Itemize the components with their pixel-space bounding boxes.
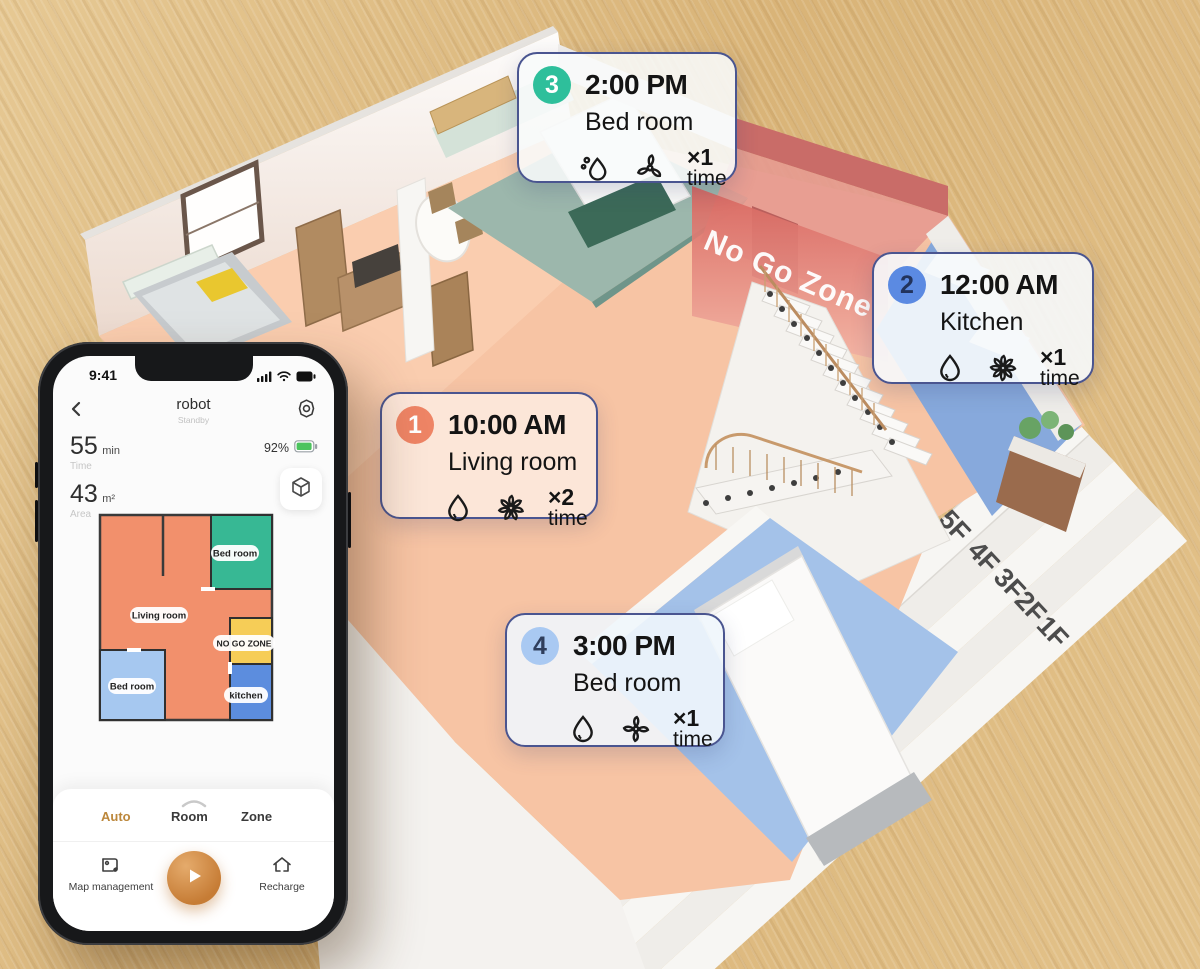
signal-icon (257, 369, 272, 387)
schedule-time: 3:00 PM (573, 630, 675, 662)
schedule-number-badge: 4 (521, 627, 559, 665)
device-title: robot (53, 396, 334, 413)
schedule-room: Kitchen (940, 308, 1078, 337)
device-status: Standby (53, 415, 334, 425)
water-drops-icon (579, 152, 613, 184)
battery-icon (296, 369, 316, 387)
map-management-button[interactable]: Map management (63, 855, 159, 893)
schedule-callout-4: 4 3:00 PM Bed room ×1 time (505, 613, 725, 747)
schedule-count: ×1 time (1040, 347, 1080, 389)
schedule-count: ×1 time (673, 708, 713, 750)
marketing-scene: 5F 4F 3F 2F 1F (0, 0, 1200, 969)
fan-pinwheel-icon (986, 351, 1020, 385)
schedule-room: Living room (448, 448, 582, 477)
play-icon (184, 866, 204, 891)
phone-notch (135, 356, 253, 381)
smartphone: 9:41 (38, 342, 348, 945)
status-bar-icons (257, 369, 316, 387)
status-bar-time: 9:41 (89, 367, 117, 383)
cube-icon (290, 476, 312, 503)
water-drop-icon (442, 492, 474, 524)
plant (1058, 424, 1074, 440)
plant (1041, 411, 1059, 429)
schedule-callout-2: 2 12:00 AM Kitchen (872, 252, 1094, 384)
volume-up-button[interactable] (35, 462, 38, 488)
schedule-callout-1: 1 10:00 AM Living room (380, 392, 598, 519)
fan-blade-icon (633, 151, 667, 185)
settings-button[interactable] (296, 398, 318, 420)
battery-status: 92% (264, 440, 318, 456)
schedule-number-badge: 1 (396, 406, 434, 444)
water-drop-icon (567, 713, 599, 745)
schedule-time: 12:00 AM (940, 269, 1058, 301)
map-label-bedroom-green: Bed room (213, 549, 257, 560)
schedule-callout-3: 3 2:00 PM Bed room ×1 time (517, 52, 737, 183)
map-3d-toggle-button[interactable] (280, 468, 322, 510)
tab-room[interactable]: Room (171, 809, 208, 824)
schedule-number-badge: 2 (888, 266, 926, 304)
mode-tabs: Auto Room Zone (53, 809, 334, 833)
schedule-count: ×1 time (687, 147, 727, 189)
app-screen: 9:41 (53, 356, 334, 931)
fan-pinwheel-icon (494, 491, 528, 525)
home-icon (271, 855, 293, 878)
schedule-time: 10:00 AM (448, 409, 566, 441)
map-label-bedroom-blue: Bed room (110, 682, 154, 693)
fan-petal-icon (619, 712, 653, 746)
plant (1019, 417, 1041, 439)
map-label-no-go-zone: NO GO ZONE (217, 639, 272, 649)
map-label-living-room: Living room (132, 611, 186, 622)
control-sheet: Auto Room Zone Map management (53, 789, 334, 931)
app-header: robot Standby (53, 396, 334, 430)
power-button[interactable] (348, 492, 351, 548)
cleaning-time-stat: 55 min Time (70, 432, 120, 472)
battery-level-icon (294, 440, 318, 456)
schedule-number-badge: 3 (533, 66, 571, 104)
map-label-kitchen: kitchen (229, 691, 262, 702)
wifi-icon (277, 369, 291, 387)
cleaning-map[interactable]: Bed room Living room NO GO ZONE Bed room… (97, 512, 277, 724)
schedule-room: Bed room (573, 669, 709, 698)
divider (53, 841, 334, 842)
schedule-count: ×2 time (548, 487, 588, 529)
map-icon (100, 855, 122, 878)
water-drop-icon (934, 352, 966, 384)
schedule-room: Bed room (585, 108, 721, 137)
schedule-time: 2:00 PM (585, 69, 687, 101)
tab-auto[interactable]: Auto (101, 809, 131, 824)
cabinet (427, 272, 473, 366)
recharge-button[interactable]: Recharge (244, 855, 320, 893)
start-cleaning-button[interactable] (167, 851, 221, 905)
tab-zone[interactable]: Zone (241, 809, 272, 824)
volume-down-button[interactable] (35, 500, 38, 542)
